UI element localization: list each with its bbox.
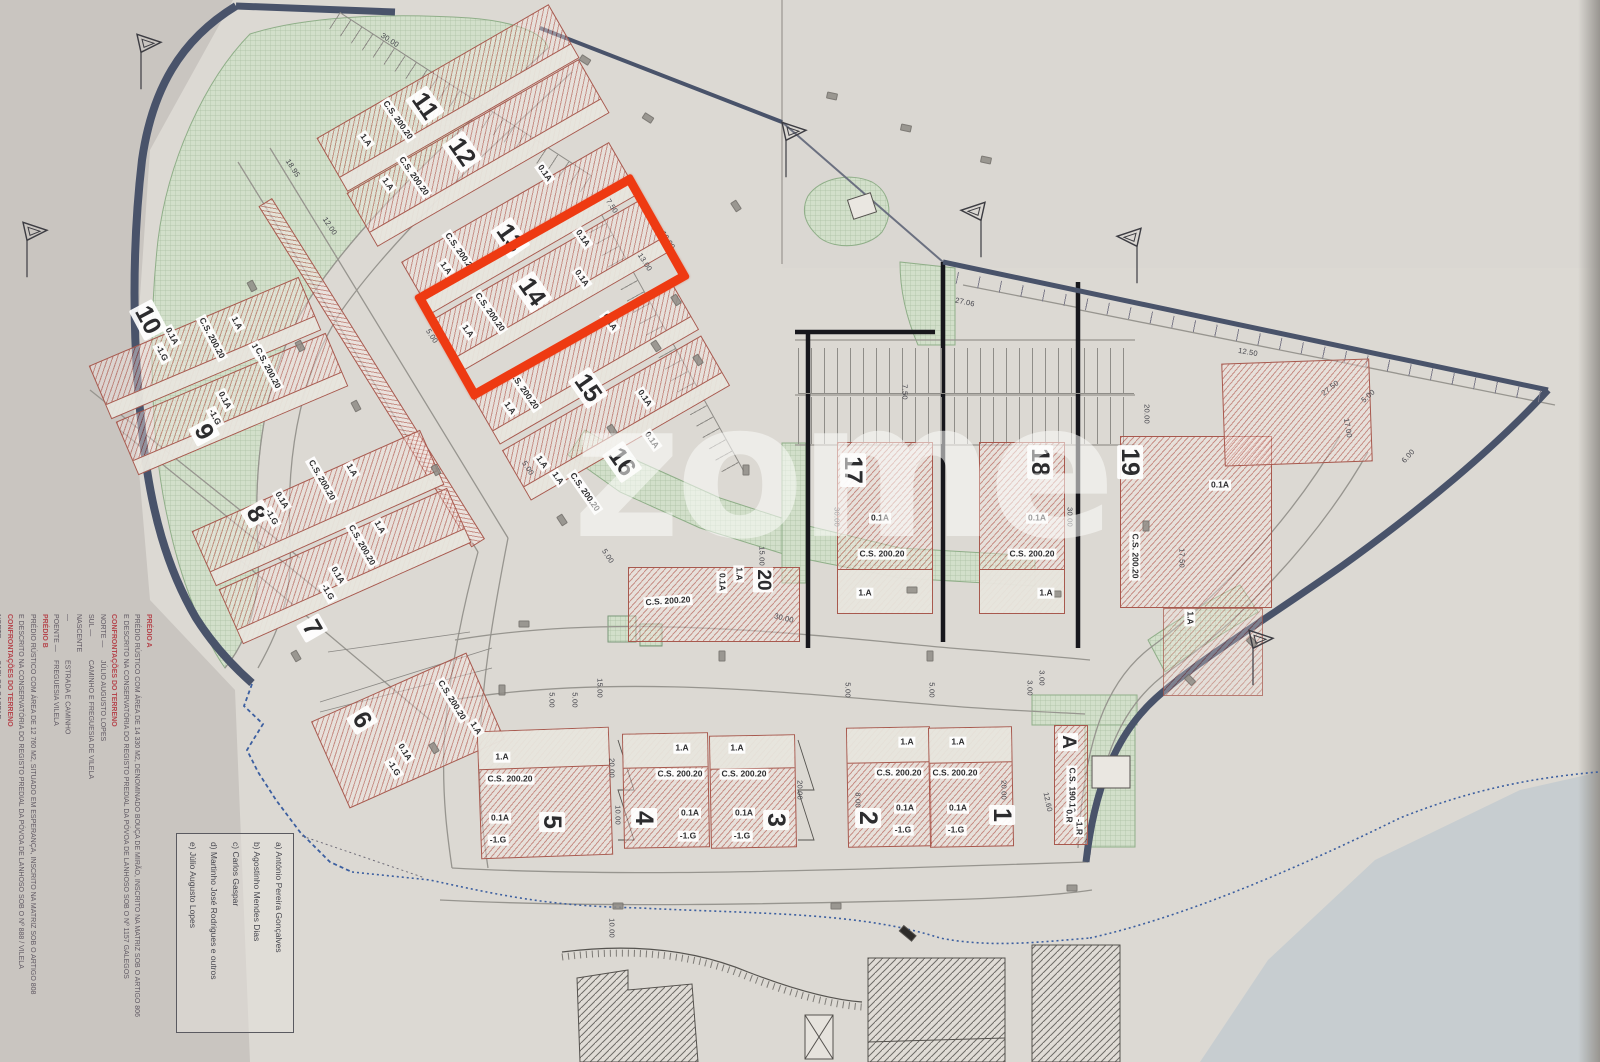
elevation-marker (1067, 885, 1078, 892)
lot-label: 0.1A (1209, 480, 1231, 491)
lot-label: C.S. 200.20 (1130, 532, 1141, 581)
lot-label: -1.G (732, 831, 753, 842)
dimension-label: 5.00 (928, 682, 937, 697)
survey-flag-icon (20, 219, 52, 286)
title-block: PRÉDIO A PRÉDIO RÚSTICO COM ÁREA DE 14 3… (0, 614, 154, 1062)
lot-label: -1.G (946, 825, 967, 836)
survey-flag-icon (1112, 225, 1144, 292)
elevation-marker (1143, 521, 1150, 532)
lot-label: 0.1A (1026, 513, 1048, 524)
dimension-label: 10.00 (614, 805, 623, 825)
elevation-marker (613, 903, 624, 910)
lot-3-front-yard (710, 735, 795, 770)
survey-flag-icon (1246, 627, 1278, 694)
lot-label: 0.1A (894, 803, 916, 814)
confront-row: NORTE —CARLOS GASPAR (0, 614, 3, 1062)
predio-b-line2: E DESCRITO NA CONSERVATÓRIA DO REGISTO P… (15, 614, 27, 1062)
lot-4-front-yard (623, 733, 708, 768)
lot-number: 17 (840, 453, 866, 487)
dimension-label: 17.50 (1178, 548, 1187, 568)
predio-b-line1: PRÉDIO RÚSTICO COM ÁREA DE 12 760 M2, SI… (26, 614, 38, 1062)
lot-label: 1.A (734, 565, 745, 582)
confront-row: POENTE —FREGUESIA VILELA (50, 614, 62, 1062)
dimension-label: 15.00 (596, 678, 605, 698)
lot-label: 0.1A (947, 803, 969, 814)
lot-label: 1.A (1185, 609, 1196, 626)
lot-label: C.S. 200.20 (1008, 549, 1057, 560)
survey-flag-icon (956, 199, 988, 266)
lot-label: C.S. 200.20 (931, 768, 980, 779)
lot-label: 1.A (728, 743, 745, 754)
elevation-marker (831, 903, 842, 910)
existing-buildings (577, 926, 1120, 1062)
confront-row: NORTE —JÚLIO AUGUSTO LOPES (96, 614, 108, 1062)
dimension-label: 10.00 (608, 918, 617, 938)
lot-label: 0.1A (717, 571, 728, 593)
lot-label: 1.A (949, 737, 966, 748)
owner-item: d) Martinho José Rodrigues e outros (203, 842, 225, 1024)
lot-5-front-yard (478, 728, 609, 770)
lot-label: -1.G (488, 835, 509, 846)
lot-label: 0.1A (733, 808, 755, 819)
predio-a-line2: E DESCRITO NA CONSERVATÓRIA DO REGISTO P… (119, 614, 131, 1062)
dimension-label: 30.00 (833, 507, 842, 527)
dimension-label: 20.00 (796, 780, 805, 800)
lot-label: -1.R (1074, 817, 1085, 837)
lot-label: C.S. 200.20 (486, 774, 535, 785)
dimension-label: 7.50 (901, 384, 910, 399)
survey-flag-icon (134, 31, 166, 98)
lot-17-front-yard (838, 569, 932, 613)
elevation-marker (907, 587, 918, 594)
parking-ticks-row-upper (798, 348, 1134, 394)
lot-label: C.S. 200.20 (875, 768, 924, 779)
lot-number: 5 (539, 812, 565, 832)
lot-number: 3 (763, 810, 789, 830)
lot-label: -1.G (678, 831, 699, 842)
dimension-label: 5.00 (548, 692, 557, 707)
elevation-marker (743, 465, 750, 476)
lot-number: A (1058, 733, 1078, 751)
lot-3-parcel (709, 734, 797, 848)
lot-label: C.S. 200.20 (720, 769, 769, 780)
elevation-marker (719, 651, 726, 662)
predio-a-confront-header: CONFRONTAÇÕES DO TERRENO (108, 614, 120, 1062)
lot-label: 1.A (493, 752, 510, 763)
lot-label: 1.A (898, 737, 915, 748)
owner-item: e) Júlio Augusto Lopes (182, 842, 204, 1024)
lot-2-front-yard (847, 727, 930, 764)
lot-label: 0.1A (869, 513, 891, 524)
predio-b-confront-header: CONFRONTAÇÕES DO TERRENO (3, 614, 15, 1062)
lot-label: 1.A (673, 743, 690, 754)
dimension-label: 15.00 (758, 546, 767, 566)
lot-number: 2 (855, 808, 881, 828)
confront-row: NASCENTE —ESTRADA E CAMINHO (61, 614, 84, 1062)
dimension-label: 5.00 (844, 682, 853, 697)
predio-a-line1: PRÉDIO RÚSTICO COM ÁREA DE 14 330 M2, DE… (131, 614, 143, 1062)
owner-item: c) Carlos Gaspar (225, 842, 247, 1024)
lot-label: -1.G (893, 825, 914, 836)
owners-box: a) António Pereira Gonçalves b) Agostinh… (176, 833, 294, 1033)
owner-item: a) António Pereira Gonçalves (268, 842, 290, 1024)
lot-1-front-yard (929, 727, 1012, 764)
lot-number: 18 (1027, 445, 1053, 479)
owner-item: b) Agostinho Mendes Dias (246, 842, 268, 1024)
dimension-label: 8.00 (854, 792, 863, 807)
lot-label: 1.A (1037, 588, 1054, 599)
site-plan-scan: zome PRÉDIO A PRÉDIO RÚSTICO COM ÁREA DE… (0, 0, 1600, 1062)
dimension-label: 3.00 (1026, 680, 1035, 695)
lot-19b-parcel (1221, 358, 1373, 466)
lot-number: 1 (989, 805, 1015, 825)
elevation-marker (499, 685, 506, 696)
lot-number: 4 (631, 808, 657, 828)
lot-label: 1.A (856, 588, 873, 599)
dimension-label: 3.00 (1038, 670, 1047, 685)
lot-label: C.S. 200.20 (656, 769, 705, 780)
lot-label: C.S. 200.20 (858, 549, 907, 560)
elevation-marker (519, 621, 530, 628)
predio-b-header: PRÉDIO B (38, 614, 50, 1062)
survey-flag-icon (779, 119, 811, 186)
dimension-label: 30.00 (1066, 507, 1075, 527)
lot-label: 0.1A (679, 808, 701, 819)
dimension-label: 20.00 (1143, 404, 1152, 424)
parking-ticks-row-lower (798, 397, 1134, 444)
dimension-label: 5.00 (571, 692, 580, 707)
lot-2-parcel (846, 726, 932, 847)
lot-number: 19 (1117, 445, 1143, 479)
predio-a-header: PRÉDIO A (142, 614, 154, 1062)
dimension-label: 20.00 (1000, 780, 1009, 800)
dimension-label: 20.00 (608, 758, 617, 778)
confront-row: SUL —CAMINHO E FREGUESIA DE VILELA (84, 614, 96, 1062)
lot-number: 20 (753, 567, 773, 592)
lot-label: 0.1A (489, 813, 511, 824)
elevation-marker (927, 651, 934, 662)
